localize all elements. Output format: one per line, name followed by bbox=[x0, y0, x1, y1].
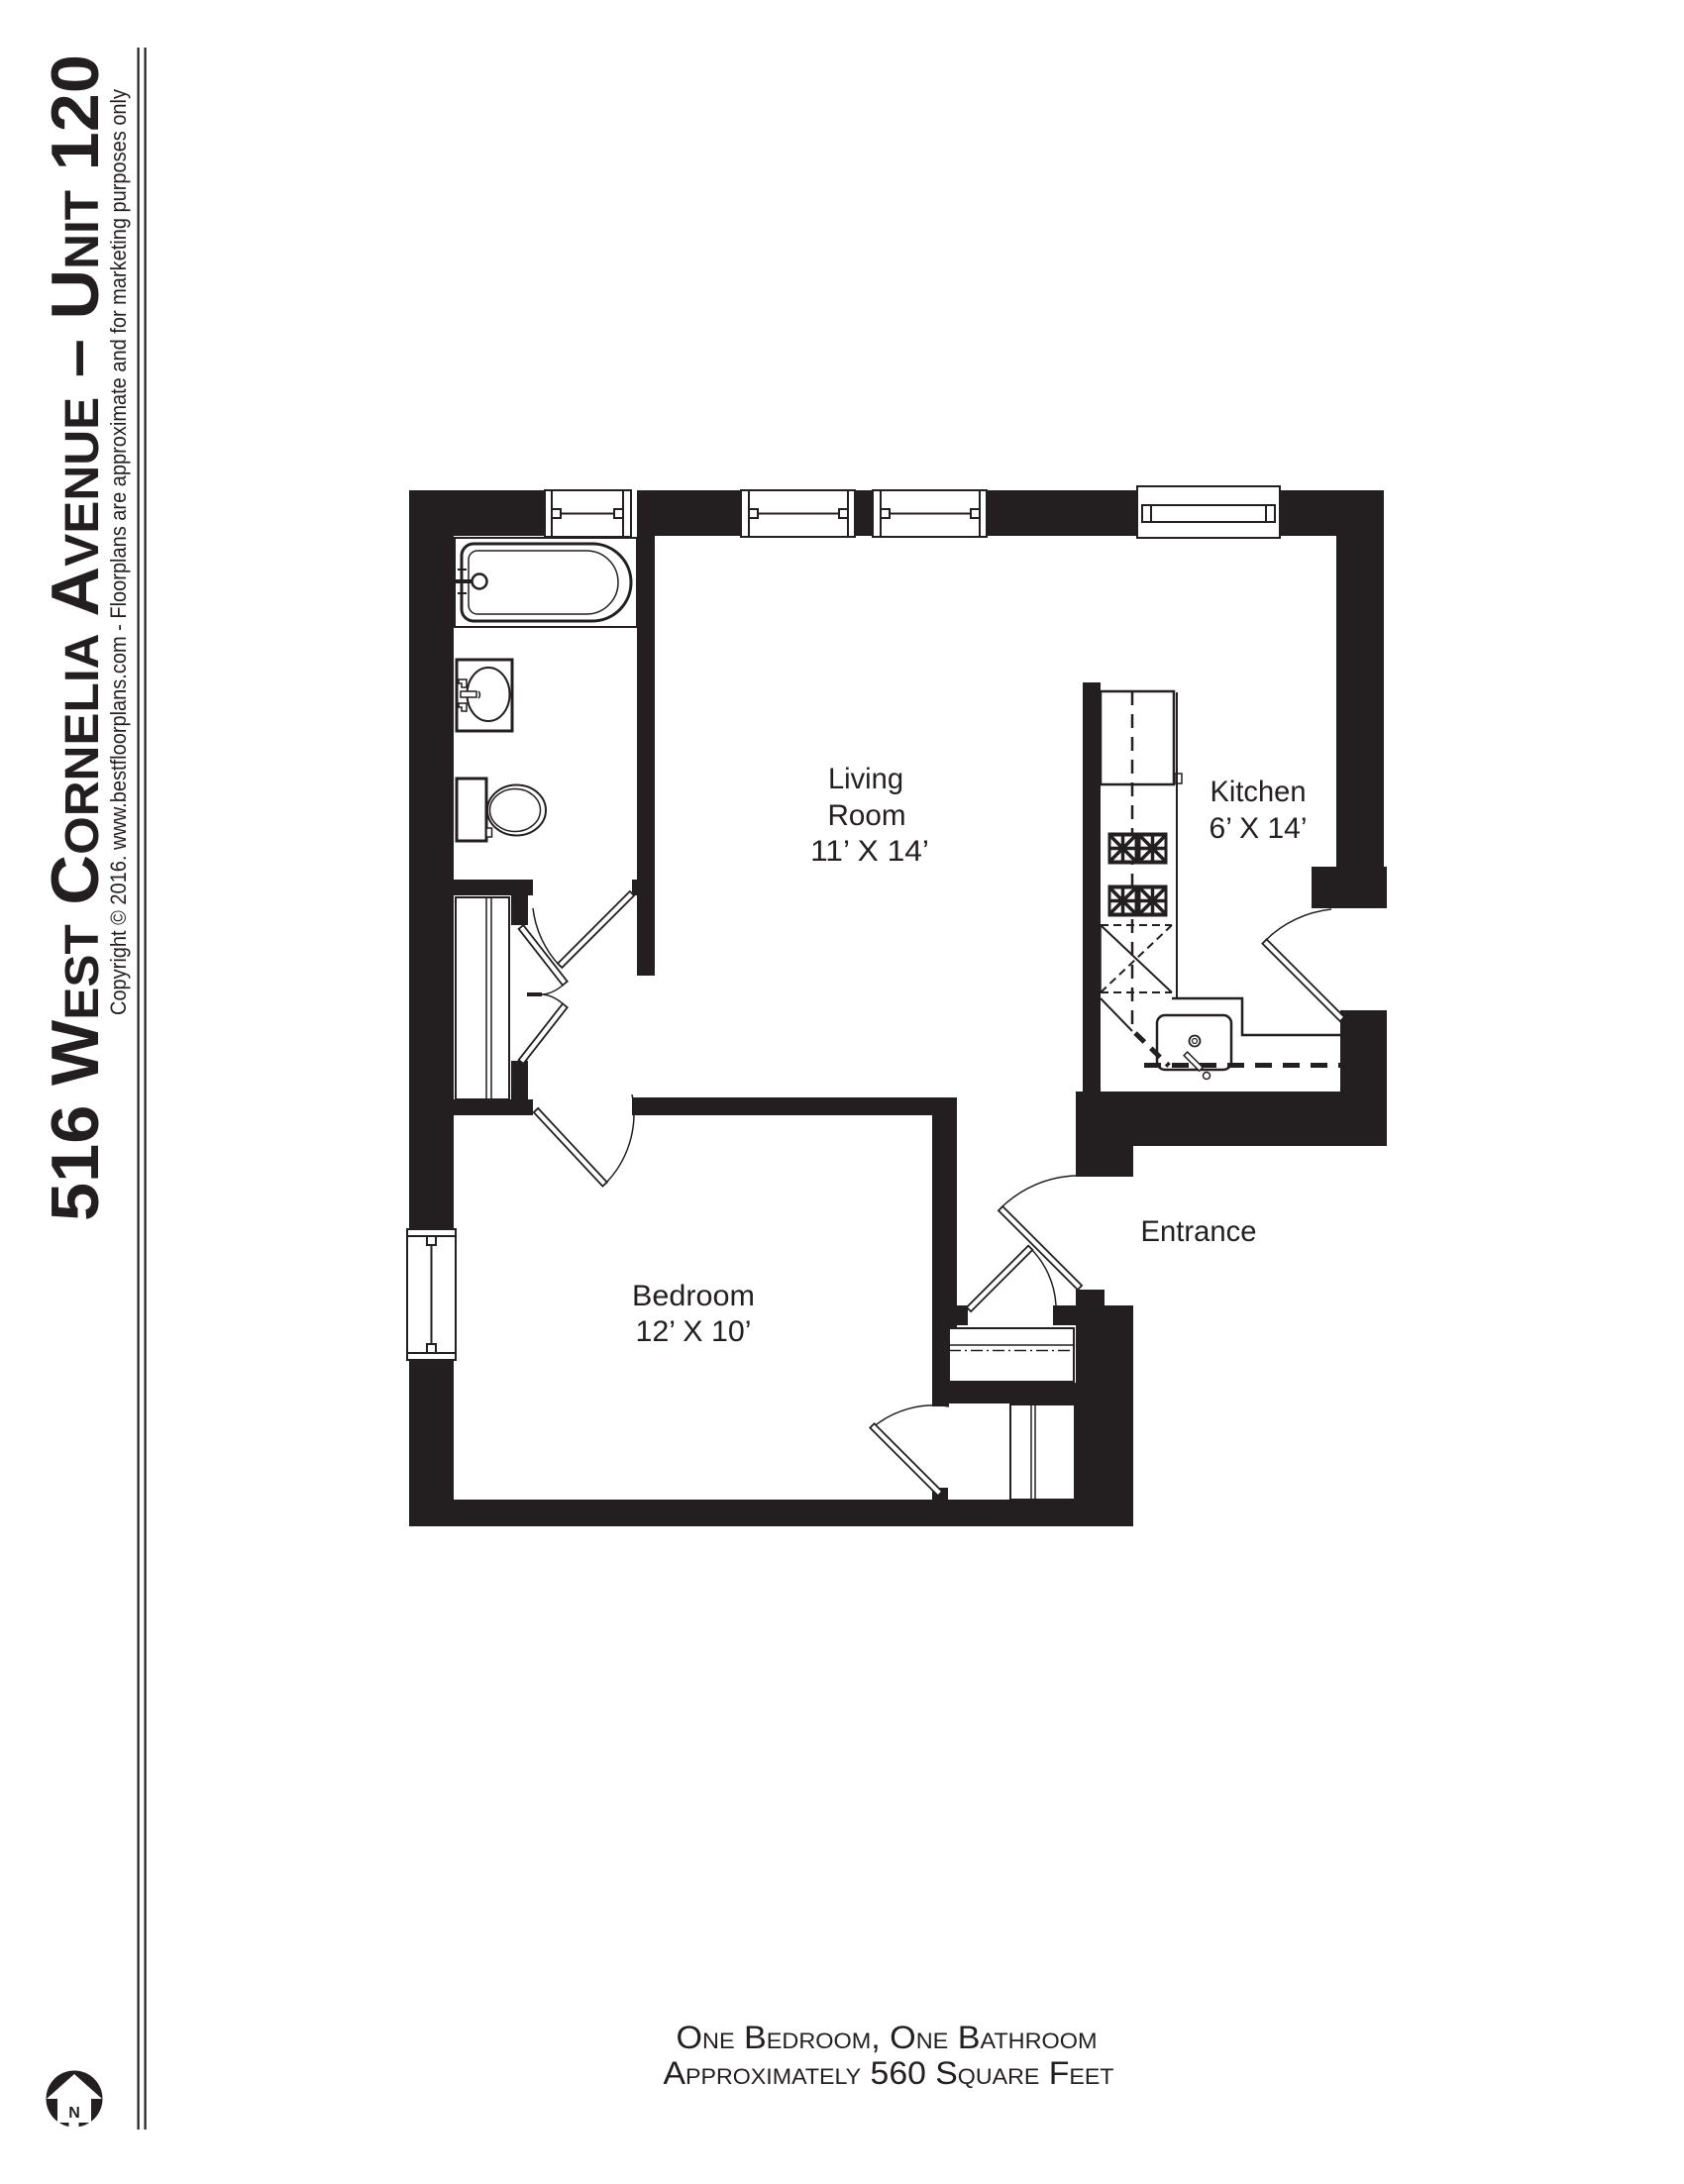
svg-text:Living: Living bbox=[828, 763, 903, 795]
svg-text:Bedroom: Bedroom bbox=[632, 1280, 755, 1312]
svg-text:Copyright © 2016. www.bestfloo: Copyright © 2016. www.bestfloorplans.com… bbox=[106, 89, 131, 1015]
svg-text:516 West Cornelia Avenue – Uni: 516 West Cornelia Avenue – Unit 120 bbox=[38, 54, 113, 1221]
svg-text:Kitchen: Kitchen bbox=[1210, 776, 1307, 808]
svg-text:Entrance: Entrance bbox=[1141, 1215, 1257, 1248]
svg-text:Approximately 560 Square Feet: Approximately 560 Square Feet bbox=[664, 2055, 1114, 2091]
svg-text:Room: Room bbox=[828, 799, 906, 832]
svg-text:6’ X 14’: 6’ X 14’ bbox=[1210, 812, 1308, 845]
svg-text:12’ X 10’: 12’ X 10’ bbox=[636, 1315, 752, 1348]
svg-text:11’ X 14’: 11’ X 14’ bbox=[810, 835, 929, 868]
svg-text:N: N bbox=[68, 2105, 80, 2122]
svg-text:One Bedroom, One Bathroom: One Bedroom, One Bathroom bbox=[677, 2020, 1098, 2055]
